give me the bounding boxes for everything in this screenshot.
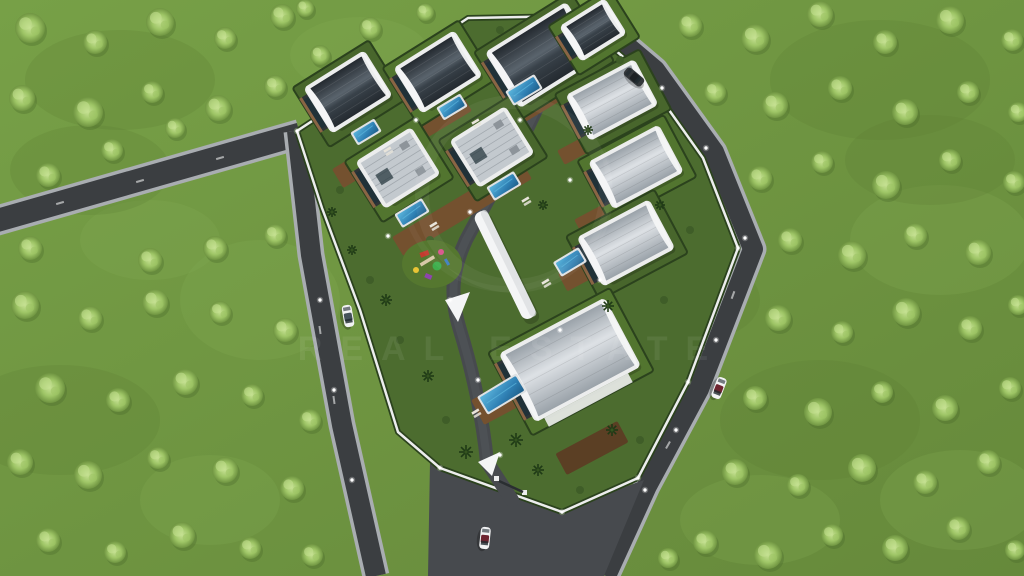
street-lamp [497, 452, 503, 458]
shrub [442, 416, 450, 424]
aerial-render-stage: REAL ESTATE [0, 0, 1024, 576]
street-lamp [413, 117, 419, 123]
palm-tree [347, 245, 357, 255]
street-lamp [557, 327, 563, 333]
street-lamp [385, 233, 391, 239]
shrub [686, 226, 694, 234]
palm-tree [509, 433, 523, 447]
street-lamp [703, 145, 709, 151]
palm-tree [602, 300, 614, 312]
street-lamp [437, 465, 443, 471]
street-lamp [517, 117, 523, 123]
palm-tree [532, 464, 544, 476]
street-lamp [673, 427, 679, 433]
street-lamp [317, 297, 323, 303]
palm-tree [459, 445, 473, 459]
street-lamp [742, 235, 748, 241]
shrub [336, 186, 344, 194]
street-lamp [294, 128, 300, 134]
street-lamp [635, 475, 641, 481]
street-lamp [331, 387, 337, 393]
shrub [636, 436, 644, 444]
street-lamp [475, 377, 481, 383]
palm-tree [538, 200, 548, 210]
shrub [366, 276, 374, 284]
street-lamp [642, 487, 648, 493]
street-lamp [685, 379, 691, 385]
shrub [496, 26, 504, 34]
palm-tree [327, 207, 337, 217]
street-lamp [447, 297, 453, 303]
street-lamp [467, 209, 473, 215]
shrub [396, 336, 404, 344]
street-lamp [597, 277, 603, 283]
palm-tree [655, 200, 665, 210]
palm-tree [606, 424, 618, 436]
playground [402, 240, 462, 288]
palm-tree [422, 370, 434, 382]
street-lamp [349, 477, 355, 483]
street-lamp [659, 85, 665, 91]
palm-tree [380, 294, 392, 306]
street-lamp [735, 245, 741, 251]
villa-complex-site-render [0, 0, 1024, 576]
shrub [616, 56, 624, 64]
shrub [660, 296, 668, 304]
street-lamp [559, 509, 565, 515]
street-lamp [567, 177, 573, 183]
street-lamp [713, 337, 719, 343]
palm-tree [583, 125, 593, 135]
shrub [576, 486, 584, 494]
